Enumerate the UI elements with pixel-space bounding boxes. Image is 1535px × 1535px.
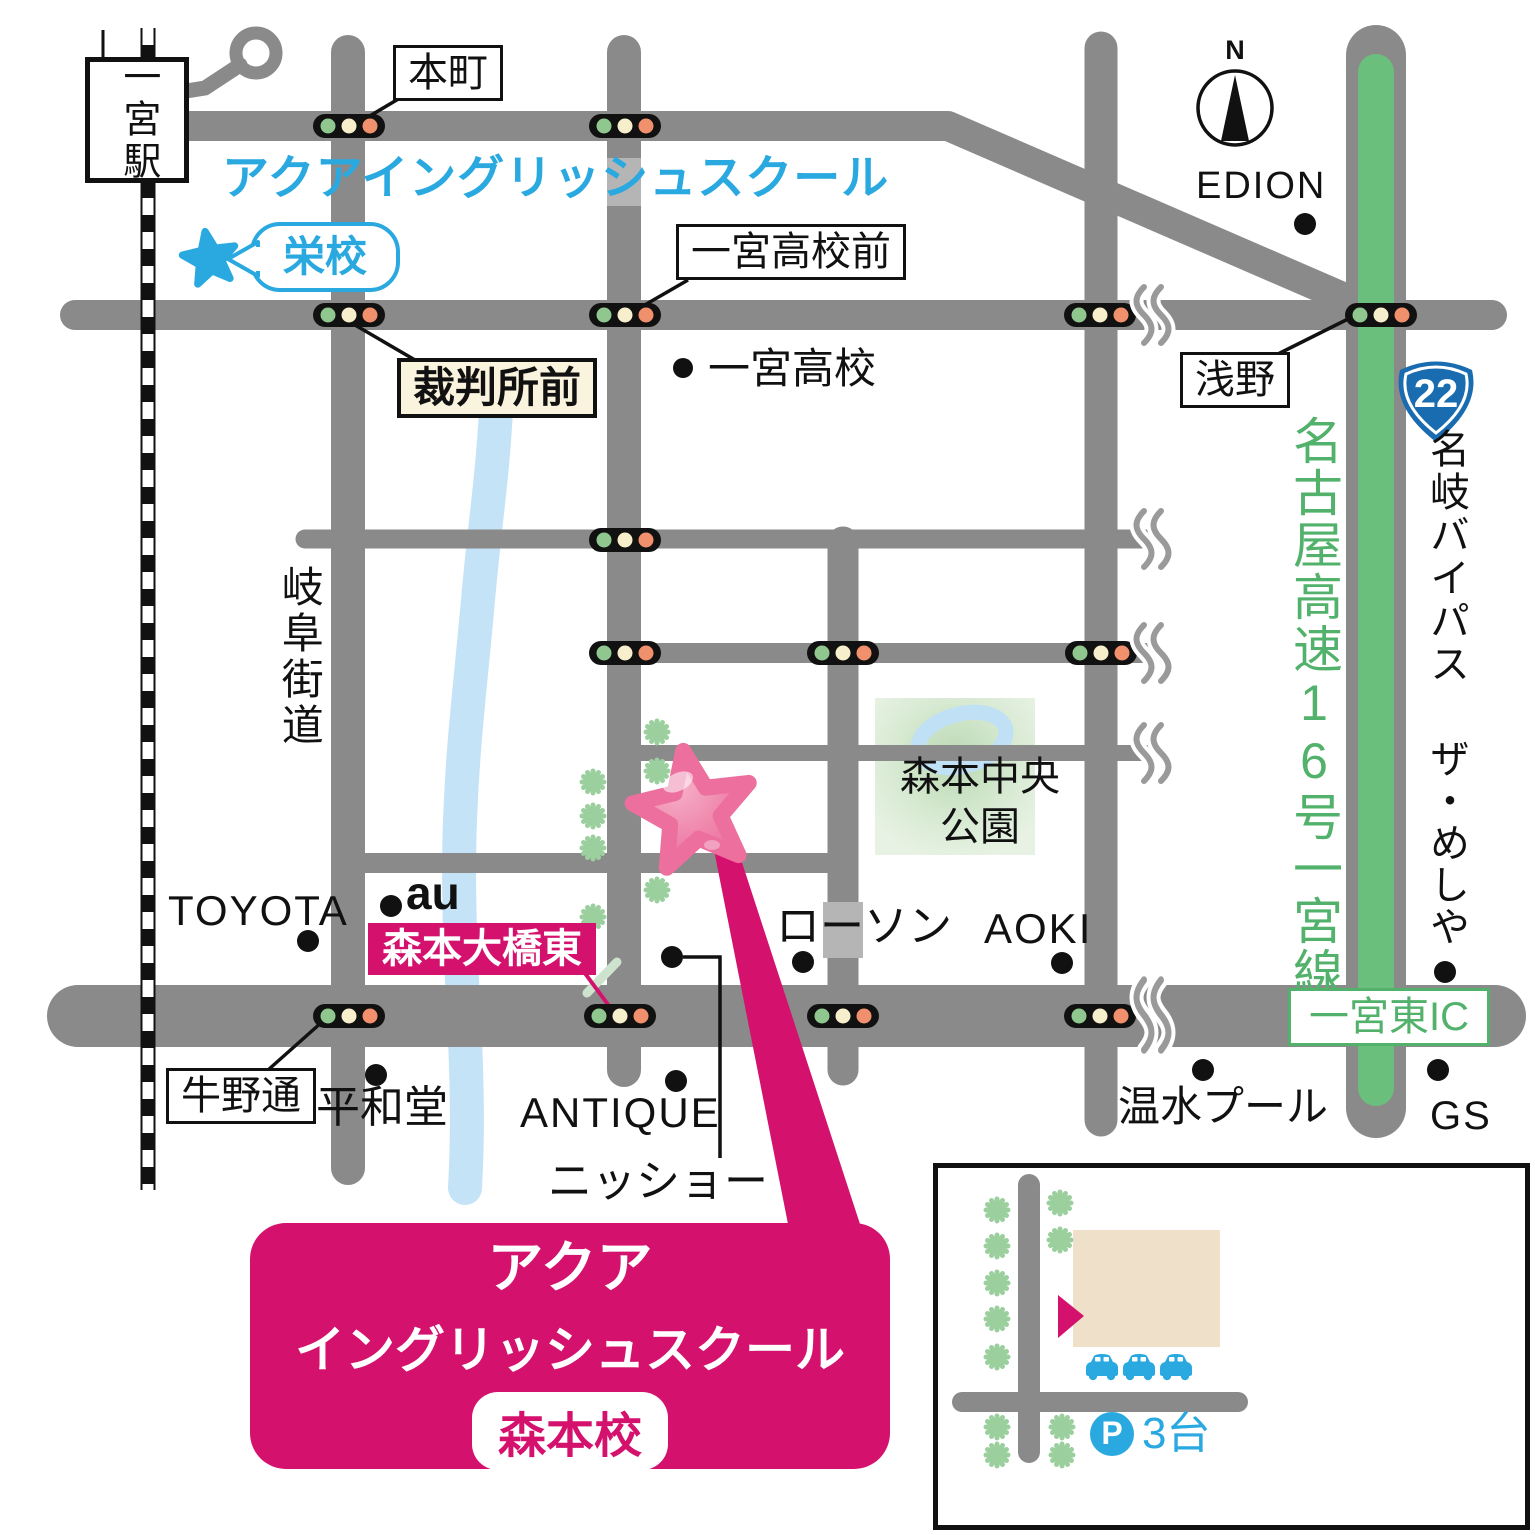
road-label-meigi-bypass: 名岐バイパス: [1424, 428, 1468, 686]
road-label-gifu-kaido: 岐阜街道: [276, 565, 322, 749]
compass-icon: [1198, 71, 1272, 145]
label-ichinomiya-higashi-ic: 一宮東IC: [1288, 988, 1490, 1046]
poi-nissho: ニッショー: [548, 1158, 768, 1206]
poi-edion: EDION: [1196, 166, 1326, 208]
main-label-line1: アクア: [487, 1223, 652, 1304]
main-school-label: アクア イングリッシュスクール 森本校: [250, 1223, 890, 1469]
parking-p-letter: P: [1090, 1412, 1134, 1456]
campus-badge: 森本校: [472, 1392, 668, 1470]
poi-au: au: [406, 868, 460, 919]
main-label-line2: イングリッシュスクール: [295, 1310, 845, 1382]
compass-north-label: N: [1211, 36, 1259, 66]
road-label-nagoya-expwy: 名古屋高速16号一宮線: [1286, 415, 1341, 999]
park-label-line2: 公園: [880, 802, 1080, 852]
access-map: 一宮駅 本町 アクアイングリッシュスクール 栄校 一宮高校前 一宮高校 裁判所前…: [0, 0, 1535, 1535]
sakae-label: 栄校: [252, 224, 398, 290]
label-koko-mae: 一宮高校前: [676, 224, 906, 280]
roundabout: [180, 33, 276, 92]
poi-toyota: TOYOTA: [168, 888, 349, 934]
parking-count: 3台: [1142, 1410, 1210, 1458]
inset-map-frame: [933, 1163, 1530, 1530]
label-asano: 浅野: [1180, 352, 1290, 408]
road-break-marks: [1137, 287, 1169, 1050]
river: [459, 388, 497, 1188]
park-label-line1: 森本中央: [880, 752, 1080, 802]
label-ushinodori: 牛野通: [166, 1068, 316, 1124]
poi-ichinomiya-koko: 一宮高校: [708, 346, 876, 392]
poi-gs: GS: [1430, 1094, 1492, 1138]
poi-antique: ANTIQUE: [520, 1090, 721, 1136]
poi-lawson: ローソン: [776, 903, 952, 951]
station-sign: 一宮駅: [85, 57, 189, 183]
route-22-number: 22: [1398, 372, 1474, 416]
school-title: アクアイングリッシュスクール: [222, 152, 889, 204]
poi-heiwado: 平和堂: [316, 1084, 448, 1132]
label-morimoto-ohashi: 森本大橋東: [368, 923, 596, 975]
label-saibansho-mae: 裁判所前: [397, 358, 597, 418]
poi-aoki: AOKI: [984, 906, 1092, 952]
park-label: 森本中央 公園: [880, 752, 1080, 852]
poi-meshiya: ザ・めしや: [1424, 738, 1468, 948]
label-honmachi: 本町: [393, 45, 503, 101]
poi-onsui-pool: 温水プール: [1118, 1084, 1328, 1130]
